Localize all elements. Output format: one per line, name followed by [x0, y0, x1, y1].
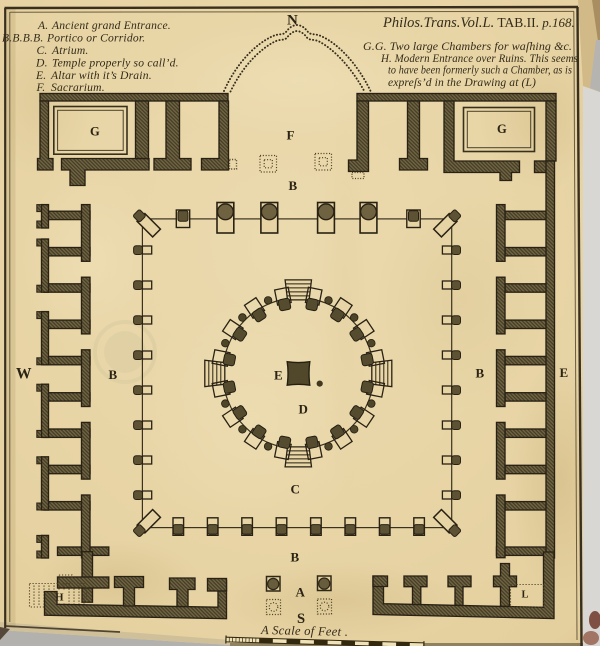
svg-text:A.: A.: [37, 19, 48, 32]
svg-text:Atrium.: Atrium.: [51, 44, 89, 57]
svg-text:C.: C.: [37, 44, 48, 57]
svg-text:N: N: [287, 13, 298, 29]
svg-text:B: B: [476, 366, 485, 381]
svg-text:F: F: [287, 128, 295, 143]
svg-text:D: D: [299, 402, 308, 417]
svg-text:Philos.Trans.Vol.L. TAB.II. p.: Philos.Trans.Vol.L. TAB.II. p.168.: [382, 15, 575, 31]
svg-text:A Scale of Feet .: A Scale of Feet .: [260, 623, 348, 639]
svg-text:A: A: [296, 585, 306, 600]
svg-text:D.: D.: [35, 57, 48, 70]
svg-text:Ancient grand Entrance.: Ancient grand Entrance.: [51, 19, 171, 32]
svg-text:B: B: [109, 367, 118, 382]
svg-text:G.G. Two large Chambers for wa: G.G. Two large Chambers for waſhing &c.: [363, 41, 572, 53]
svg-text:B.B.B.B.: B.B.B.B.: [2, 32, 44, 45]
svg-text:L: L: [522, 590, 529, 601]
svg-text:F.: F.: [36, 81, 46, 94]
svg-text:B: B: [289, 178, 298, 193]
svg-text:W: W: [16, 366, 32, 383]
svg-text:H. Modern Entrance over Ruins.: H. Modern Entrance over Ruins. This seem…: [380, 53, 579, 65]
svg-text:C: C: [291, 482, 300, 497]
svg-text:Portico or Corridor.: Portico or Corridor.: [46, 32, 145, 45]
svg-text:Temple properly so call’d.: Temple properly so call’d.: [52, 57, 179, 70]
svg-text:E: E: [560, 365, 569, 380]
svg-text:B: B: [291, 550, 300, 565]
svg-text:E: E: [274, 368, 283, 383]
svg-text:expreſs’d in the Drawing at (L: expreſs’d in the Drawing at (L): [388, 77, 536, 89]
svg-text:G: G: [497, 122, 507, 136]
svg-text:Sacrarium.: Sacrarium.: [51, 81, 105, 94]
svg-text:G: G: [90, 125, 100, 139]
svg-text:to have been formerly such a C: to have been formerly such a Chamber, as…: [388, 65, 572, 77]
